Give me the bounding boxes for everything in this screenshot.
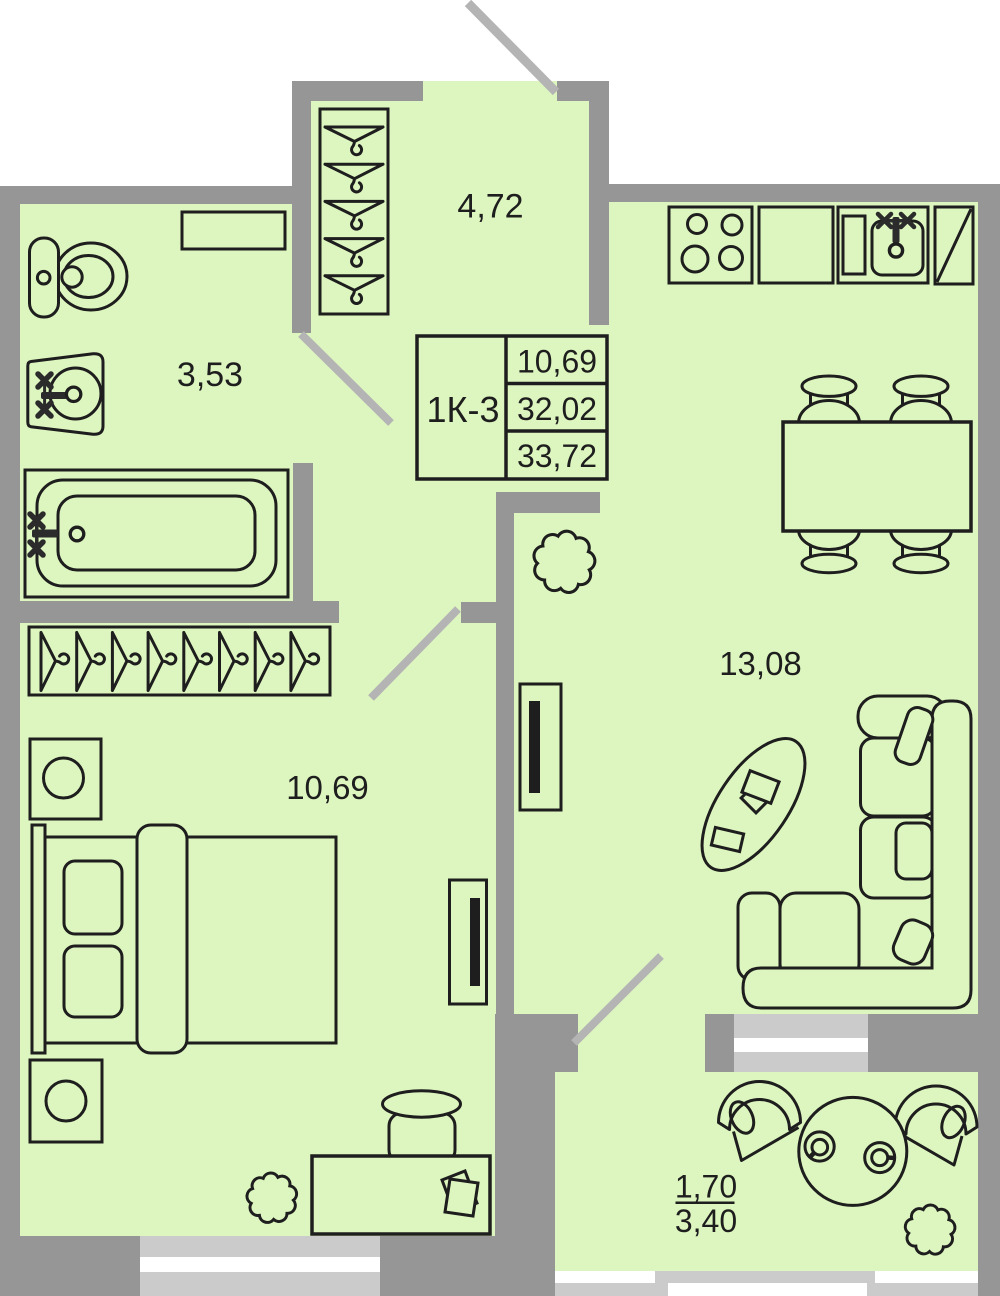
svg-text:32,02: 32,02 [517,391,597,427]
svg-text:33,72: 33,72 [517,438,597,474]
svg-text:1К-3: 1К-3 [426,389,499,430]
svg-text:3,53: 3,53 [177,356,243,394]
svg-text:1,70: 1,70 [675,1169,737,1205]
svg-text:4,72: 4,72 [457,188,523,226]
svg-text:10,69: 10,69 [517,344,597,380]
svg-text:13,08: 13,08 [719,645,802,682]
svg-text:3,40: 3,40 [675,1203,737,1239]
svg-text:10,69: 10,69 [286,769,369,806]
